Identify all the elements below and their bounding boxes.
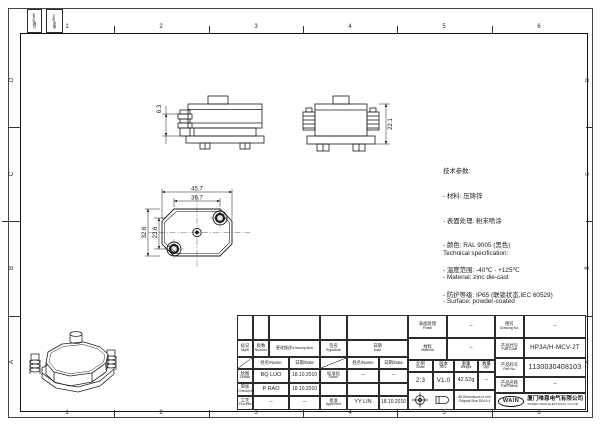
zone-top-5: 5 bbox=[442, 24, 445, 30]
material-value: – bbox=[447, 338, 495, 360]
tick bbox=[303, 410, 304, 417]
finish-label: 表面处理 Finish bbox=[408, 315, 447, 338]
rev-label: 版本 REV. bbox=[433, 360, 454, 372]
tick bbox=[586, 127, 592, 128]
side-view-drawing: 6.3 bbox=[150, 88, 280, 163]
finish-value: – bbox=[447, 315, 495, 338]
zone-bottom-2: 2 bbox=[159, 410, 162, 416]
label-en: Drawing No. bbox=[500, 327, 519, 331]
zone-bottom-3: 3 bbox=[254, 410, 257, 416]
tick bbox=[209, 410, 210, 417]
drawn-name: BQ LUO bbox=[253, 369, 289, 383]
rev-strip-date-box: 日期/Date bbox=[27, 9, 42, 33]
tick bbox=[8, 221, 20, 222]
dim-front: 22.1 bbox=[388, 118, 394, 130]
dimension-note-cell: All Dimensions in mm Original Size DIN A… bbox=[454, 390, 495, 410]
spec-cn-line: - 表面处理: 粉末喷涂 bbox=[443, 216, 553, 227]
drawing-no-value: – bbox=[524, 315, 586, 338]
label-en: Material bbox=[421, 349, 433, 353]
label-en: Part Code bbox=[502, 348, 518, 352]
part-name-label: 产品名称 Part Name bbox=[495, 377, 524, 393]
drawing-sheet: 1 2 3 4 5 6 1 2 3 4 5 6 D C B A D C B A … bbox=[0, 0, 600, 424]
rev-header-number: 处数 Number bbox=[253, 340, 269, 357]
part-no-value: 1130030408103 bbox=[524, 358, 586, 377]
value: HP3A/H-MCV-2T bbox=[530, 345, 580, 352]
rev-strip-date-label: 日期/Date bbox=[33, 13, 37, 29]
value: – bbox=[303, 400, 306, 406]
isometric-view-drawing bbox=[18, 322, 128, 422]
value: 42.52g bbox=[458, 378, 475, 384]
label-en: Weight bbox=[461, 366, 472, 370]
zone-right-b: B bbox=[585, 266, 591, 269]
part-name-value: – bbox=[524, 377, 586, 393]
value: 18.10.2010 bbox=[292, 373, 317, 378]
spec-en-title: Technical specification: bbox=[443, 250, 563, 260]
note-line-2: Original Size DIN A 4 bbox=[459, 400, 491, 404]
wain-logo: WAIN bbox=[498, 396, 524, 407]
label-en: Signature bbox=[326, 349, 341, 353]
label-en: Checked bbox=[238, 390, 252, 394]
rev-row-cell bbox=[237, 315, 253, 340]
part-code-label: 产品代号 Part Code bbox=[495, 338, 524, 358]
company-cell: WAIN 厦门唯恩电气有限公司 XIAMEN WAIN ELECTRICAL C… bbox=[495, 393, 586, 410]
label: 日期/Date bbox=[384, 361, 403, 366]
rev-row-cell bbox=[269, 315, 320, 340]
label: 姓名/Name bbox=[352, 361, 373, 366]
projection-symbol-cell bbox=[408, 390, 454, 410]
spec-en-line: - Surface: powder-coated bbox=[443, 298, 563, 308]
rev-header-description: 更改描述/Description bbox=[269, 340, 320, 357]
zone-right-d: D bbox=[585, 78, 591, 82]
rev-strip-rev-label: 更改/Rev bbox=[53, 14, 57, 29]
approved-label: 批准 Approved bbox=[320, 396, 347, 410]
dim-top-outer-h: 32.6 bbox=[142, 226, 148, 238]
value: 18.10.2010 bbox=[292, 387, 317, 392]
spec-cn-title: 技术参数: bbox=[443, 166, 553, 177]
value: – bbox=[485, 378, 488, 384]
value: – bbox=[469, 324, 472, 330]
value: – bbox=[361, 373, 364, 379]
rev-header-date: 日期 Date bbox=[347, 340, 408, 357]
zone-top-4: 4 bbox=[348, 24, 351, 30]
value: – bbox=[269, 400, 272, 406]
zone-top-1: 1 bbox=[65, 24, 68, 30]
checked-name: P RAO bbox=[253, 383, 289, 396]
label-en: Number bbox=[255, 349, 267, 353]
zone-top-2: 2 bbox=[159, 24, 162, 30]
part-code-value: HP3A/H-MCV-2T bbox=[524, 338, 586, 358]
label: 更改描述/Description bbox=[276, 346, 313, 350]
zone-left-a: A bbox=[9, 360, 15, 364]
value: – bbox=[392, 373, 395, 379]
tick bbox=[303, 26, 304, 33]
top-view-drawing: 45.7 36.7 32.6 23.6 bbox=[140, 183, 260, 278]
tick bbox=[397, 26, 398, 33]
sig-header-date-right: 日期/Date bbox=[379, 357, 408, 369]
weight-label: 重量 Weight bbox=[454, 360, 478, 372]
zone-left-c: C bbox=[9, 172, 15, 176]
sig-header-name-left: 姓名/Name bbox=[253, 357, 289, 369]
spec-en-line: - Material: zinc die-cast bbox=[443, 274, 563, 284]
rev-value: V1.0 bbox=[433, 372, 454, 390]
label-en: Process bbox=[239, 403, 252, 407]
rev-strip-rev-box: 更改/Rev bbox=[46, 9, 63, 33]
sig-header-date-left: 日期/Date bbox=[289, 357, 320, 369]
dim-side: 6.3 bbox=[157, 104, 163, 113]
label-en: Date bbox=[374, 349, 381, 353]
label: 姓名/Name bbox=[260, 361, 281, 366]
drawn-label: 绘图 Drawn bbox=[237, 369, 253, 383]
weight-value: 42.52g bbox=[454, 372, 478, 390]
label-en: Finish bbox=[423, 327, 432, 331]
drawing-no-label: 图号 Drawing No. bbox=[495, 315, 524, 338]
dim-top-inner-w: 36.7 bbox=[191, 196, 203, 202]
zone-left-d: D bbox=[9, 78, 15, 82]
rev-row-cell bbox=[320, 315, 347, 340]
checked-label: 审核 Checked bbox=[237, 383, 253, 396]
label-en: Stand. bbox=[328, 376, 338, 380]
process-name: – bbox=[253, 396, 289, 410]
rev-row-cell bbox=[253, 315, 269, 340]
label-en: REV. bbox=[440, 366, 448, 370]
dim-top-inner-h: 23.6 bbox=[153, 226, 159, 238]
label-en: Scale bbox=[416, 366, 425, 370]
process-label: 工艺 Process bbox=[237, 396, 253, 410]
value: P RAO bbox=[262, 387, 279, 393]
zone-top-3: 3 bbox=[254, 24, 257, 30]
first-angle-projection-icon bbox=[410, 392, 452, 408]
blank-name bbox=[347, 383, 379, 396]
scale-label: 比例 Scale bbox=[408, 360, 433, 372]
part-no-label: 产品料号 Part No. bbox=[495, 358, 524, 377]
rev-row-cell bbox=[347, 315, 408, 340]
tick bbox=[8, 127, 20, 128]
spec-cn-line: - 材料: 压铸锌 bbox=[443, 191, 553, 202]
value: BQ LUO bbox=[261, 373, 282, 379]
zone-right-c: C bbox=[585, 172, 591, 176]
blank-date bbox=[379, 383, 408, 396]
value: – bbox=[553, 382, 556, 388]
centering-mark bbox=[2, 221, 8, 222]
label-en: Mark bbox=[241, 349, 249, 353]
rev-header-mark: 标记 Mark bbox=[237, 340, 253, 357]
stand-name: – bbox=[347, 369, 379, 383]
process-date: – bbox=[289, 396, 320, 410]
stand-date: – bbox=[379, 369, 408, 383]
value: 2:3 bbox=[416, 378, 425, 385]
qty-value: – bbox=[478, 372, 495, 390]
scale-value: 2:3 bbox=[408, 372, 433, 390]
drawn-date: 18.10.2010 bbox=[289, 369, 320, 383]
tick bbox=[8, 316, 20, 317]
zone-bottom-4: 4 bbox=[348, 410, 351, 416]
value: – bbox=[553, 324, 556, 330]
tick bbox=[114, 26, 115, 33]
front-view-drawing: 22.1 bbox=[293, 90, 398, 168]
sig-header-diag-left bbox=[237, 357, 253, 369]
value: V1.0 bbox=[437, 378, 451, 385]
tick bbox=[586, 221, 592, 222]
company-name-en: XIAMEN WAIN ELECTRICAL CO.LTD bbox=[527, 403, 578, 406]
label-en: Drawn bbox=[240, 376, 250, 380]
material-label: 材料 Material bbox=[408, 338, 447, 360]
label-en: Part No. bbox=[503, 368, 516, 372]
value: YY LIN bbox=[354, 400, 371, 406]
blank-label bbox=[320, 383, 347, 396]
label: 日期/Date bbox=[295, 361, 314, 366]
sig-header-name-right: 姓名/Name bbox=[347, 357, 379, 369]
tick bbox=[209, 26, 210, 33]
label-en: Part Name bbox=[501, 385, 518, 389]
zone-top-6: 6 bbox=[537, 24, 540, 30]
tick bbox=[397, 410, 398, 417]
zone-left-b: B bbox=[9, 266, 15, 270]
qty-label: 数量 Qty. bbox=[478, 360, 495, 372]
label-en: Qty. bbox=[483, 366, 489, 370]
tick bbox=[492, 26, 493, 33]
rev-header-signature: 签名 Signature bbox=[320, 340, 347, 357]
value: 18.10.2010 bbox=[381, 400, 406, 405]
approved-name: YY LIN bbox=[347, 396, 379, 410]
approved-date: 18.10.2010 bbox=[379, 396, 408, 410]
dim-top-outer-w: 45.7 bbox=[191, 187, 203, 193]
value: 1130030408103 bbox=[529, 364, 582, 371]
tick bbox=[586, 316, 592, 317]
stand-label: 标准化 Stand. bbox=[320, 369, 347, 383]
label-en: Approved bbox=[326, 403, 341, 407]
checked-date: 18.10.2010 bbox=[289, 383, 320, 396]
value: – bbox=[469, 346, 472, 352]
sig-header-diag-right bbox=[320, 357, 347, 369]
